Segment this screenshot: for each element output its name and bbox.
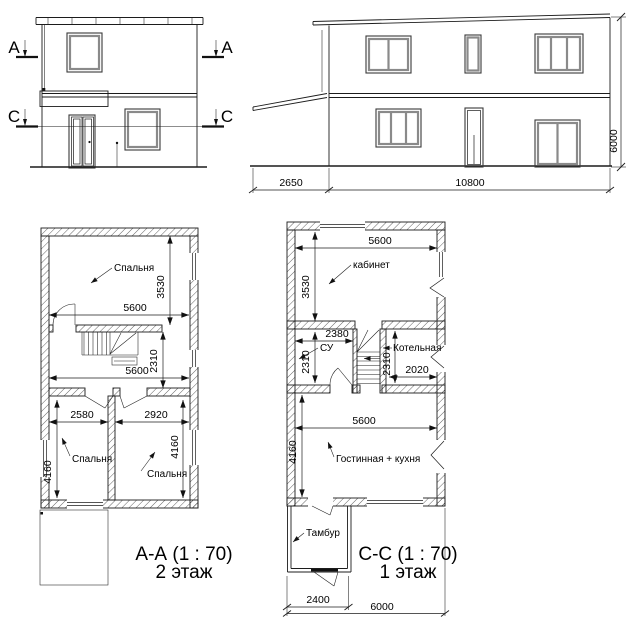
dim-boiler-depth: 2310: [381, 352, 393, 376]
side-window-2f-narrow: [465, 35, 481, 73]
floor1-stairs: [357, 330, 380, 384]
dim-house-width: 10800: [455, 177, 484, 189]
section-c-right-label: C: [221, 107, 233, 126]
side-porch-roof: [253, 94, 327, 111]
room-label-bedroom-right: Спальня: [147, 469, 187, 480]
side-window-2f-double: [366, 36, 411, 73]
section-a-right-label: A: [221, 38, 233, 57]
floor1-plan-subtitle: 1 этаж: [380, 562, 437, 583]
room-label-bedroom-left: Спальня: [72, 454, 112, 465]
front-wall-corner-mark: [43, 88, 46, 91]
floor2-plan-subtitle: 2 этаж: [156, 562, 213, 583]
side-french-window-1f: [535, 120, 580, 167]
floor2-plan: 5600 3530 5600 2310 2580 2920 4160 4160 …: [40, 228, 233, 585]
vestibule-exit-door: [314, 572, 338, 586]
front-wall: [42, 25, 197, 168]
side-window-2f-triple: [535, 34, 583, 73]
section-c-left-label: C: [8, 107, 20, 126]
dim-wc-depth: 2310: [300, 350, 312, 374]
side-window-1f-triple: [376, 109, 421, 147]
dim-office-depth: 3530: [300, 275, 312, 299]
dim-bedroom-top-width: 5600: [123, 302, 147, 314]
floor1-plan: 5600 3530 2380 2310 2310 2020 5600 4160 …: [283, 222, 458, 617]
front-roof: [36, 18, 203, 25]
dim-bedroom-left-depth: 4160: [42, 460, 54, 484]
dim-hall-depth: 2310: [148, 349, 160, 373]
dim-bedroom-top-depth: 3530: [155, 275, 167, 299]
side-roof: [313, 14, 610, 92]
front-window-2f: [67, 33, 102, 72]
side-elevation: 2650 10800 6000: [249, 13, 626, 193]
floor2-dimensions: 5600 3530 5600 2310 2580 2920 4160 4160: [42, 236, 189, 498]
room-label-bedroom-top: Спальня: [114, 263, 154, 274]
side-door-1f: [465, 108, 483, 167]
dim-house-height: 6000: [608, 129, 620, 153]
room-label-boiler: Котельная: [393, 343, 441, 354]
dim-office-width: 5600: [368, 235, 392, 247]
room-label-office: кабинет: [353, 259, 390, 271]
dim-bedroom-left-width: 2580: [70, 409, 94, 421]
floor2-stairs: [82, 332, 138, 365]
architectural-drawing-sheet: A A C C: [0, 0, 635, 620]
room-label-vestibule: Тамбур: [306, 527, 340, 539]
dim-porch-width: 2650: [279, 177, 303, 189]
door-handle: [88, 141, 90, 143]
dim-wc-width: 2380: [325, 328, 349, 340]
dim-boiler-width: 2020: [405, 364, 429, 376]
front-elevation: A A C C: [8, 18, 233, 169]
section-a-left-label: A: [8, 38, 20, 57]
drawing-canvas: A A C C: [0, 0, 635, 620]
front-canopy: [40, 91, 197, 107]
dim-living-width: 5600: [352, 415, 376, 427]
room-label-wc: СУ: [320, 343, 334, 354]
room-label-living: Гостинная + кухня: [336, 454, 420, 465]
dim-bedroom-right-depth: 4160: [169, 435, 181, 459]
dim-living-depth: 4160: [287, 440, 299, 464]
floor1-vestibule-walls: [288, 506, 352, 586]
dim-total-width: 6000: [370, 601, 394, 613]
dim-bedroom-right-width: 2920: [144, 409, 168, 421]
dim-hall-width: 5600: [125, 365, 149, 377]
floor2-porch-outline: [40, 510, 108, 585]
dim-vestibule-width: 2400: [306, 594, 330, 606]
front-entrance-door: [69, 115, 95, 168]
downspout: [116, 142, 118, 167]
front-window-1f: [125, 109, 160, 150]
